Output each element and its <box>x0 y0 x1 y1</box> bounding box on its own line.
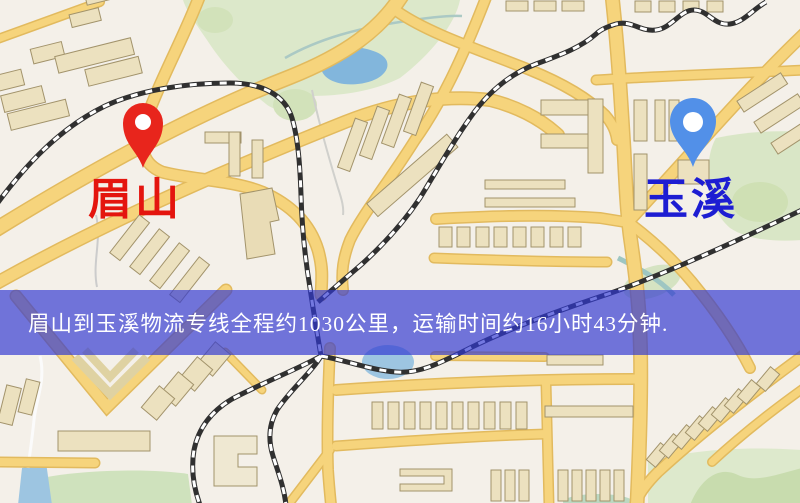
map-screenshot: 眉山 玉溪 眉山到玉溪物流专线全程约1030公里，运输时间约16小时43分钟. <box>0 0 800 503</box>
route-info-text: 眉山到玉溪物流专线全程约1030公里，运输时间约16小时43分钟. <box>0 307 668 338</box>
red-location-pin-icon <box>123 103 163 168</box>
blue-location-pin-icon <box>670 98 716 167</box>
origin-pin[interactable] <box>113 98 173 178</box>
destination-city-label: 玉溪 <box>644 178 738 222</box>
map-canvas <box>0 0 800 503</box>
origin-city-label: 眉山 <box>88 178 182 222</box>
route-info-banner: 眉山到玉溪物流专线全程约1030公里，运输时间约16小时43分钟. <box>0 290 800 355</box>
destination-pin[interactable] <box>661 95 725 179</box>
